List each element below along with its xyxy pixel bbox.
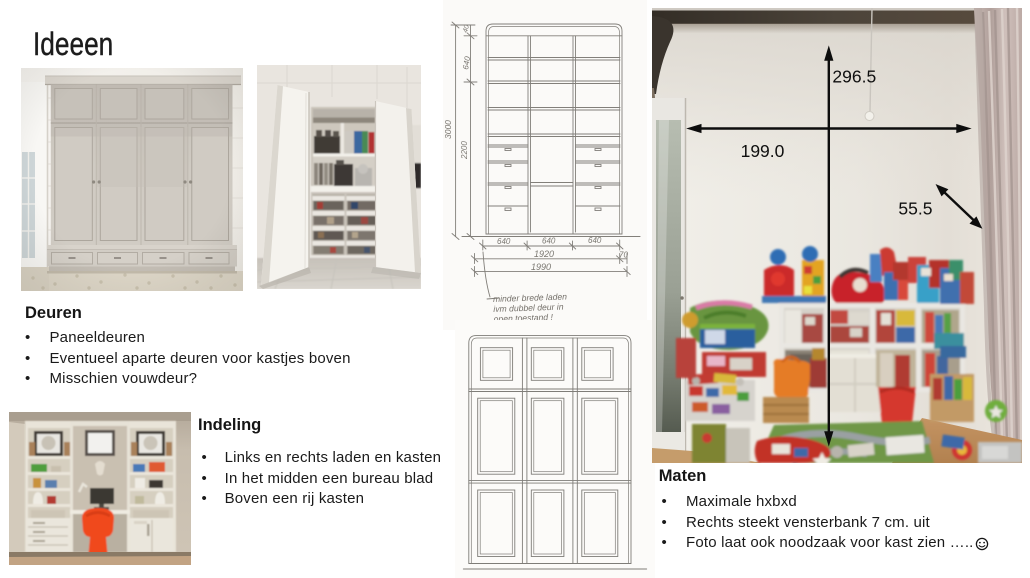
svg-text:296.5: 296.5 <box>832 67 876 87</box>
svg-text:640: 640 <box>588 236 602 245</box>
svg-text:640: 640 <box>497 237 511 246</box>
svg-text:55.5: 55.5 <box>898 199 932 219</box>
svg-text:1990: 1990 <box>531 262 551 272</box>
svg-text:3000: 3000 <box>443 120 453 139</box>
svg-text:640: 640 <box>542 237 556 246</box>
svg-text:70: 70 <box>619 251 628 260</box>
svg-text:1920: 1920 <box>534 249 554 259</box>
svg-text:199.0: 199.0 <box>741 141 785 161</box>
svg-text:2200: 2200 <box>460 141 469 160</box>
